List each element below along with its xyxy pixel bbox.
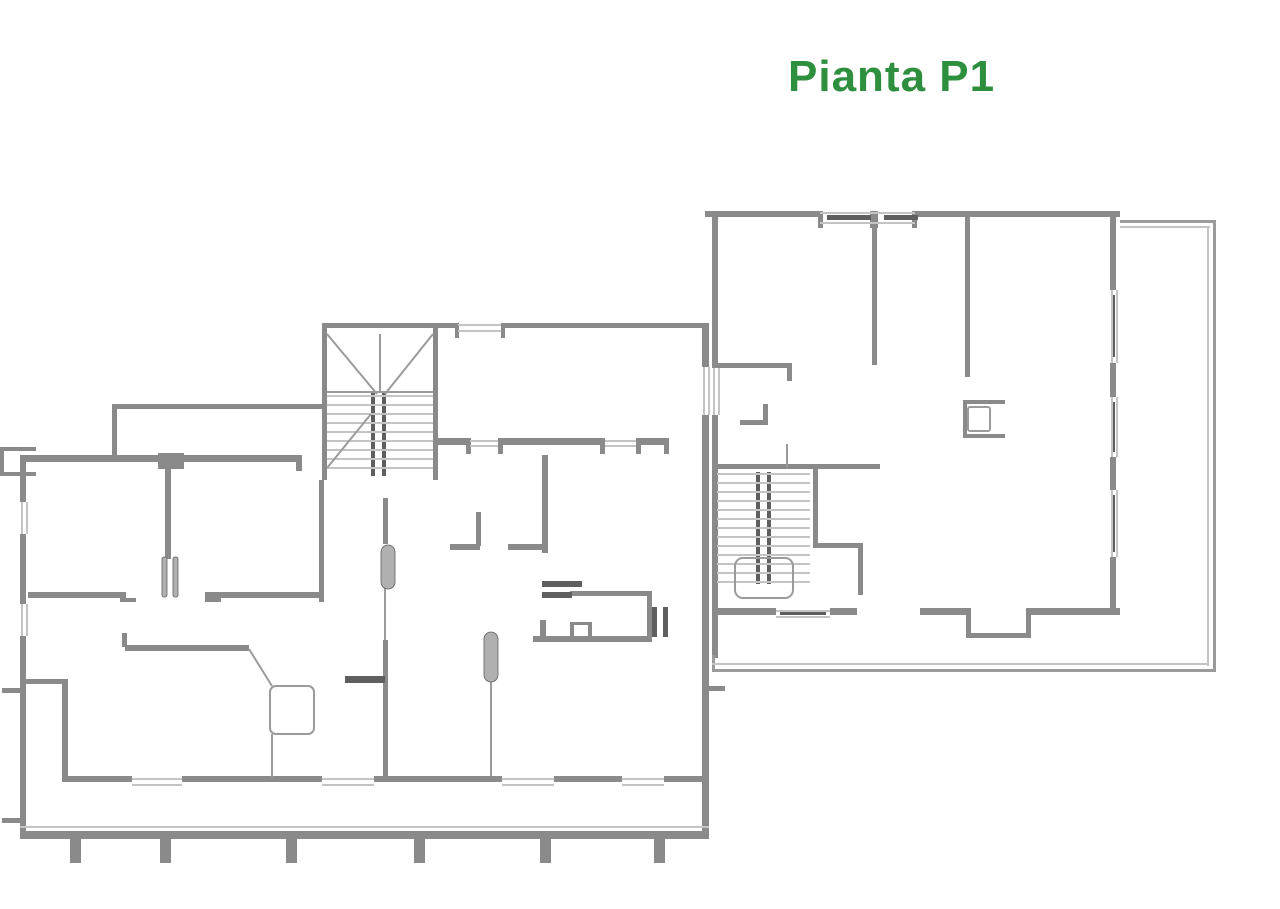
wall-segment <box>963 400 967 438</box>
wall-segment <box>374 776 502 782</box>
railing-post <box>540 839 551 863</box>
wall-segment <box>554 776 622 782</box>
wall-segment <box>1110 217 1116 290</box>
wall-segment <box>319 480 324 602</box>
window-line <box>1116 490 1118 557</box>
window-line <box>820 222 915 224</box>
wall-segment <box>712 464 880 469</box>
wall-segment <box>636 438 641 454</box>
terrace-line <box>1213 220 1216 672</box>
window-line <box>605 445 636 447</box>
floor-plan-svg <box>0 0 1280 909</box>
wall-segment <box>1110 363 1116 397</box>
wall-segment <box>322 323 438 328</box>
window-line <box>1116 290 1118 363</box>
railing-post <box>286 839 297 863</box>
wall-segment <box>640 438 668 445</box>
terrace-line <box>712 669 1216 672</box>
wall-segment <box>438 438 470 445</box>
wall-segment <box>647 593 652 640</box>
detail-bar <box>884 215 918 220</box>
terrace-line <box>1120 220 1216 223</box>
wall-segment <box>0 447 36 451</box>
right-stair-treads <box>717 474 810 582</box>
detail-bar <box>827 215 871 220</box>
door-leaf <box>484 632 498 682</box>
terrace-line <box>1207 226 1209 666</box>
wall-segment <box>498 438 503 454</box>
window-line <box>458 324 501 326</box>
wall-segment <box>450 544 480 550</box>
window-line <box>502 778 554 780</box>
detail-bar <box>663 607 668 637</box>
wall-segment <box>787 363 792 381</box>
wall-segment <box>600 438 605 454</box>
wall-segment <box>502 438 600 445</box>
window-line <box>776 610 830 612</box>
wall-segment <box>2 818 20 823</box>
terrace-line <box>712 663 1209 665</box>
wall-segment <box>830 608 857 615</box>
wall-segment <box>712 363 792 368</box>
wall-segment <box>322 323 327 480</box>
window-line <box>622 784 664 786</box>
wall-segment <box>20 455 160 462</box>
wall-segment <box>165 469 171 559</box>
window-lines <box>20 212 1118 828</box>
wall-segment <box>813 464 818 548</box>
wall-segment <box>542 455 548 553</box>
window-line <box>20 826 709 828</box>
wall-segment <box>182 455 296 462</box>
wall-segment <box>570 591 652 596</box>
detail-bar <box>542 592 572 598</box>
window-line <box>502 784 554 786</box>
door-leaves <box>162 545 498 682</box>
wall-segment <box>664 438 669 454</box>
wall-segment <box>965 217 970 377</box>
fixture-outline <box>270 686 314 734</box>
wall-segment <box>20 636 26 836</box>
detail-bar <box>652 607 657 637</box>
wall-segment <box>62 679 68 779</box>
railing-post <box>70 839 81 863</box>
wall-segment <box>25 679 67 684</box>
wall-segment <box>205 598 221 602</box>
wall-segment <box>0 472 36 476</box>
wall-segment <box>508 544 546 550</box>
wall-segment <box>125 645 249 651</box>
wall-segment <box>476 512 481 546</box>
wall-segment <box>2 688 20 693</box>
detail-bar <box>345 676 385 683</box>
railing-post <box>160 839 171 863</box>
window-line <box>21 604 23 636</box>
wall-segment <box>1030 608 1120 615</box>
plan-line <box>385 334 433 394</box>
window-line <box>820 212 915 214</box>
wall-segment <box>963 400 1005 404</box>
fixture-outline <box>968 407 990 431</box>
wall-segment <box>158 453 184 469</box>
wall-segment <box>120 598 136 602</box>
window-line <box>1111 490 1113 557</box>
wall-segment <box>205 592 322 598</box>
wall-segment <box>872 217 877 365</box>
door-leaf <box>173 557 178 597</box>
window-line <box>1111 290 1113 363</box>
window-line <box>26 502 28 534</box>
detail-bar <box>542 581 582 587</box>
window-line <box>26 604 28 636</box>
wall-segment <box>501 323 505 338</box>
wall-segment <box>182 776 322 782</box>
window-line <box>132 784 182 786</box>
left-building-walls <box>0 323 709 839</box>
window-line <box>132 778 182 780</box>
window-line <box>622 778 664 780</box>
wall-segment <box>813 543 863 548</box>
fixture-outlines <box>270 407 990 734</box>
window-line <box>470 445 498 447</box>
wall-segment <box>705 211 820 217</box>
wall-segment <box>703 686 707 700</box>
wall-segment <box>62 776 132 782</box>
right-building-walls <box>703 211 1120 700</box>
plan-line <box>249 649 272 686</box>
door-leaf <box>381 545 395 589</box>
window-line <box>718 368 720 415</box>
balcony-posts <box>70 839 665 863</box>
window-line <box>713 368 715 415</box>
wall-segment <box>20 831 709 839</box>
window-line <box>776 616 830 618</box>
left-stair-treads <box>327 396 433 468</box>
floor-plan <box>0 0 1280 909</box>
window-line <box>470 440 498 442</box>
window-line <box>322 784 374 786</box>
wall-segment <box>712 211 718 368</box>
wall-segment <box>966 633 1031 638</box>
plan-title: Pianta P1 <box>788 52 995 102</box>
wall-segment <box>702 323 709 367</box>
wall-segment <box>702 415 709 836</box>
wall-segment <box>433 323 438 480</box>
wall-segment <box>540 620 546 636</box>
window-line <box>21 502 23 534</box>
wall-segment <box>112 404 117 457</box>
wall-segment <box>296 455 302 471</box>
wall-segment <box>20 455 26 502</box>
wall-segment <box>664 776 702 782</box>
wall-segment <box>1110 457 1116 490</box>
wall-segment <box>28 592 126 598</box>
terrace-line <box>1120 226 1210 228</box>
wall-segment <box>963 434 1005 438</box>
wall-segment <box>112 404 325 409</box>
window-line <box>458 330 501 332</box>
wall-segment <box>763 404 768 425</box>
wall-segment <box>920 608 970 615</box>
wall-segment <box>533 636 652 642</box>
window-line <box>605 440 636 442</box>
window-line <box>1116 397 1118 457</box>
wall-segment <box>383 498 388 544</box>
plan-line <box>327 334 377 394</box>
wall-segment <box>0 447 4 476</box>
wall-segment <box>383 640 388 776</box>
window-line <box>703 367 705 415</box>
window-line <box>708 367 710 415</box>
window-line <box>1111 397 1113 457</box>
railing-post <box>414 839 425 863</box>
wall-segment <box>122 633 127 647</box>
door-leaf <box>162 557 167 597</box>
wall-segment <box>570 622 592 625</box>
window-line <box>322 778 374 780</box>
railing-post <box>654 839 665 863</box>
wall-segment <box>712 608 776 615</box>
wall-segment <box>20 534 26 604</box>
wall-segment <box>915 211 1120 217</box>
wall-segment <box>1110 557 1116 612</box>
wall-segment <box>858 543 863 595</box>
wall-segment <box>505 323 708 328</box>
